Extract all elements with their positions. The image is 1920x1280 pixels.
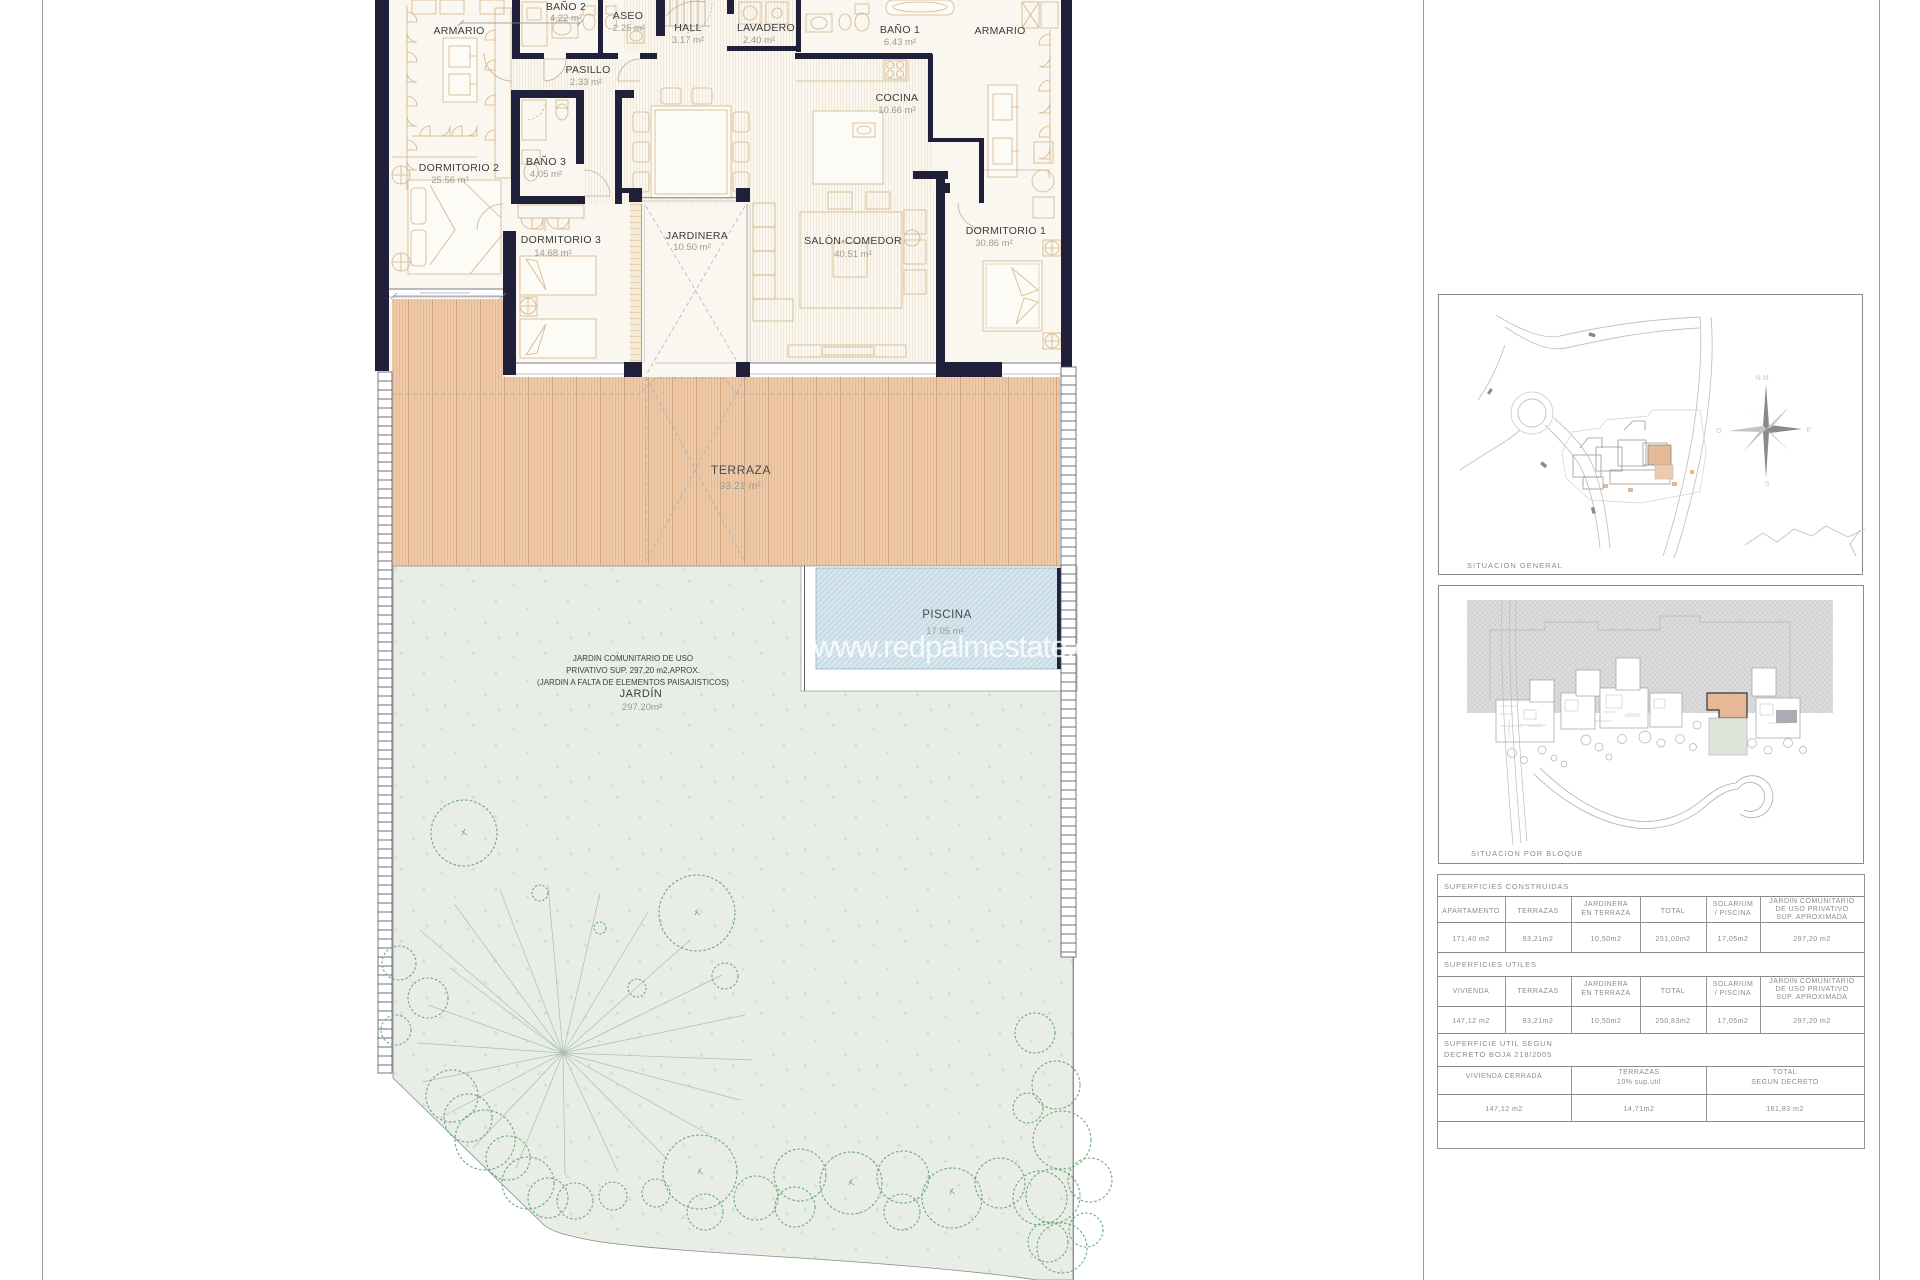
svg-text:SITUACION POR BLOQUE: SITUACION POR BLOQUE <box>1471 849 1584 858</box>
svg-text:SALÓN-COMEDOR: SALÓN-COMEDOR <box>804 234 902 247</box>
svg-text:/ PISCINA: / PISCINA <box>1715 910 1751 917</box>
svg-text:JARDIN COMUNITARIO: JARDIN COMUNITARIO <box>1769 978 1855 985</box>
svg-text:JARDÍN: JARDÍN <box>620 687 663 700</box>
svg-text:PASILLO: PASILLO <box>565 64 610 76</box>
svg-text:30.86 m²: 30.86 m² <box>975 238 1013 249</box>
svg-text:4.05 m²: 4.05 m² <box>530 169 562 180</box>
svg-text:O: O <box>1716 428 1722 435</box>
svg-text:10.66 m²: 10.66 m² <box>878 105 916 116</box>
svg-text:VIVIENDA: VIVIENDA <box>1453 988 1490 995</box>
svg-text:EN TERRAZA: EN TERRAZA <box>1581 990 1630 997</box>
svg-text:SUP. APROXIMADA: SUP. APROXIMADA <box>1776 914 1847 921</box>
svg-text:147,12 m2: 147,12 m2 <box>1485 1106 1523 1113</box>
svg-text:SOLARIUM: SOLARIUM <box>1713 981 1754 988</box>
svg-text:297,20 m2: 297,20 m2 <box>1793 936 1831 943</box>
svg-text:297,20 m2: 297,20 m2 <box>1793 1018 1831 1025</box>
svg-text:BAÑO 1: BAÑO 1 <box>880 23 920 36</box>
svg-text:TOTAL: TOTAL <box>1661 988 1685 995</box>
svg-text:TOTAL: TOTAL <box>1661 908 1685 915</box>
svg-text:10,50m2: 10,50m2 <box>1591 1018 1622 1025</box>
svg-text:93,21m2: 93,21m2 <box>1523 936 1554 943</box>
svg-text:297.20m²: 297.20m² <box>622 702 662 713</box>
svg-text:E: E <box>1807 427 1812 434</box>
svg-text:SUPERFICIES CONSTRUIDAS: SUPERFICIES CONSTRUIDAS <box>1444 882 1569 891</box>
svg-text:6.43 m²: 6.43 m² <box>884 37 916 48</box>
svg-text:93.21 m²: 93.21 m² <box>719 480 761 492</box>
svg-text:DORMITORIO 1: DORMITORIO 1 <box>966 225 1046 237</box>
svg-text:SUPERFICIE UTIL SEGUN: SUPERFICIE UTIL SEGUN <box>1444 1039 1553 1048</box>
svg-text:DE USO PRIVATIVO: DE USO PRIVATIVO <box>1775 906 1848 913</box>
svg-text:93,21m2: 93,21m2 <box>1523 1018 1554 1025</box>
svg-text:ASEO: ASEO <box>613 10 643 22</box>
svg-text:TERRAZAS: TERRAZAS <box>1618 1069 1659 1076</box>
svg-text:SUP. APROXIMADA: SUP. APROXIMADA <box>1776 994 1847 1001</box>
svg-text:2.33 m²: 2.33 m² <box>570 77 602 88</box>
svg-text:2.25 m²: 2.25 m² <box>613 23 645 34</box>
svg-text:DE USO PRIVATIVO: DE USO PRIVATIVO <box>1775 986 1848 993</box>
svg-text:ARMARIO: ARMARIO <box>433 25 484 37</box>
svg-text:SITUACION GENERAL: SITUACION GENERAL <box>1467 561 1563 570</box>
svg-text:BAÑO 2: BAÑO 2 <box>546 0 586 13</box>
svg-text:LAVADERO: LAVADERO <box>737 22 795 34</box>
svg-text:PISCINA: PISCINA <box>922 609 972 621</box>
svg-text:EN TERRAZA: EN TERRAZA <box>1581 910 1630 917</box>
svg-text:10,50m2: 10,50m2 <box>1591 936 1622 943</box>
svg-text:DORMITORIO 3: DORMITORIO 3 <box>521 234 601 246</box>
svg-text:SUPERFICIES UTILES: SUPERFICIES UTILES <box>1444 960 1537 969</box>
svg-text:TERRAZAS: TERRAZAS <box>1517 988 1558 995</box>
svg-text:250,83m2: 250,83m2 <box>1655 1018 1690 1025</box>
svg-text:S: S <box>1765 481 1770 488</box>
svg-text:171,40 m2: 171,40 m2 <box>1452 936 1490 943</box>
svg-text:2.40 m²: 2.40 m² <box>743 35 775 46</box>
svg-text:17,05m2: 17,05m2 <box>1718 936 1749 943</box>
svg-text:4.22 m²: 4.22 m² <box>550 13 582 24</box>
svg-text:BAÑO 3: BAÑO 3 <box>526 155 566 168</box>
svg-text:14,71m2: 14,71m2 <box>1624 1106 1655 1113</box>
svg-text:APARTAMENTO: APARTAMENTO <box>1442 908 1500 915</box>
svg-text:JARDINERA: JARDINERA <box>666 230 728 242</box>
svg-text:TERRAZA: TERRAZA <box>711 463 771 477</box>
svg-text:14.68 m²: 14.68 m² <box>534 248 572 259</box>
svg-text:JARDINERA: JARDINERA <box>1584 901 1628 908</box>
svg-text:SEGUN DECRETO: SEGUN DECRETO <box>1751 1079 1818 1086</box>
svg-text:3.17 m²: 3.17 m² <box>672 35 704 46</box>
svg-text:147,12 m2: 147,12 m2 <box>1452 1018 1490 1025</box>
svg-text:TERRAZAS: TERRAZAS <box>1517 908 1558 915</box>
svg-text:161,83 m2: 161,83 m2 <box>1766 1106 1804 1113</box>
svg-text:ARMARIO: ARMARIO <box>974 25 1025 37</box>
svg-text:DORMITORIO 2: DORMITORIO 2 <box>419 162 499 174</box>
svg-text:JARDIN COMUNITARIO DE USO: JARDIN COMUNITARIO DE USO <box>573 654 693 663</box>
svg-text:JARDINERA: JARDINERA <box>1584 981 1628 988</box>
svg-text:TOTAL: TOTAL <box>1773 1069 1797 1076</box>
svg-text:DECRETO BOJA 218/2005: DECRETO BOJA 218/2005 <box>1444 1050 1552 1059</box>
svg-text:(JARDIN A FALTA DE ELEMENTOS: (JARDIN A FALTA DE ELEMENTOS PAISAJISTIC… <box>537 678 729 687</box>
svg-text:VIVIENDA CERRADA: VIVIENDA CERRADA <box>1466 1073 1542 1080</box>
svg-text:N.M.: N.M. <box>1756 375 1771 382</box>
svg-text:10% sup.util: 10% sup.util <box>1617 1079 1661 1086</box>
svg-text:www.redpalmestate.c: www.redpalmestate.c <box>812 629 1089 664</box>
svg-text:10.50 m²: 10.50 m² <box>673 242 711 253</box>
svg-text:PRIVATIVO SUP. 297,20 m2,APRO: PRIVATIVO SUP. 297,20 m2,APROX. <box>566 666 700 675</box>
svg-text:40.51 m²: 40.51 m² <box>834 249 872 260</box>
svg-text:SOLARIUM: SOLARIUM <box>1713 901 1754 908</box>
svg-text:25.56 m²: 25.56 m² <box>431 175 469 186</box>
svg-text:251,00m2: 251,00m2 <box>1655 936 1690 943</box>
svg-text:JARDIN COMUNITARIO: JARDIN COMUNITARIO <box>1769 898 1855 905</box>
svg-text:COCINA: COCINA <box>876 92 919 104</box>
svg-text:HALL: HALL <box>674 22 701 34</box>
svg-text:17,05m2: 17,05m2 <box>1718 1018 1749 1025</box>
svg-text:/ PISCINA: / PISCINA <box>1715 990 1751 997</box>
